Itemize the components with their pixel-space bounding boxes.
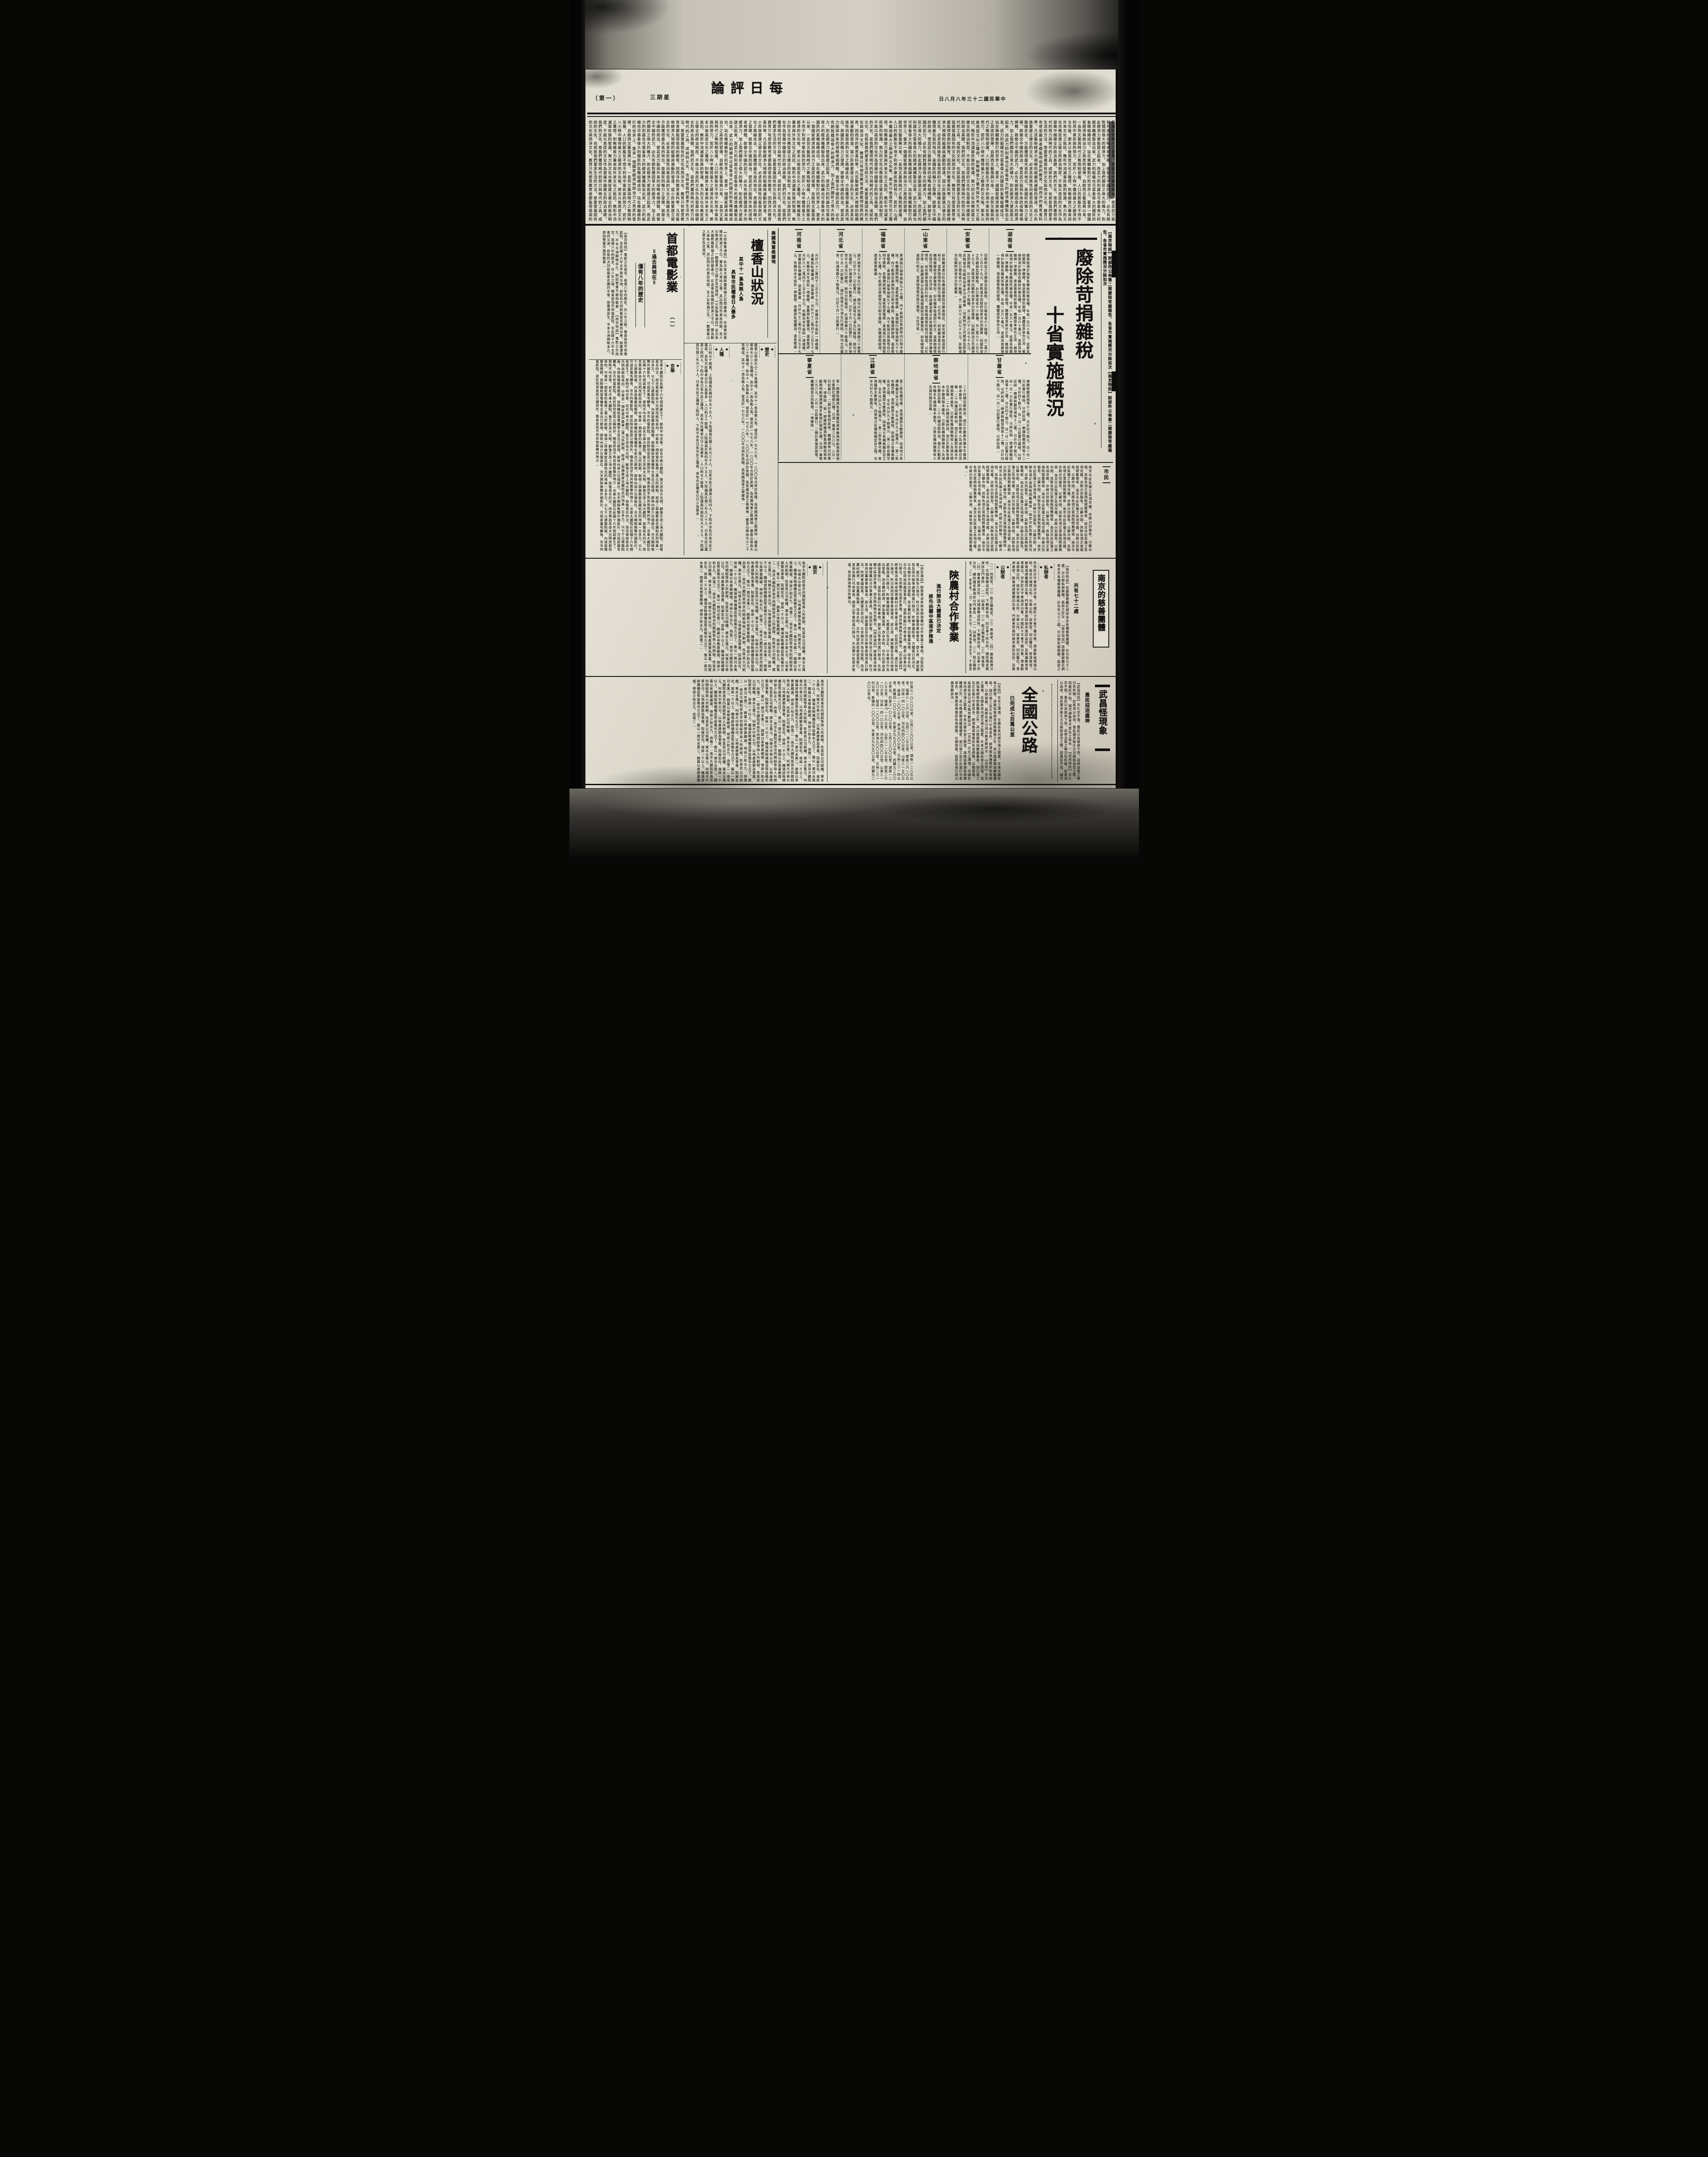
- charity-title: 南京的慈善團體: [1096, 574, 1106, 643]
- highway-subhead: 已完成七百萬公里: [1009, 696, 1015, 774]
- film-title: 首都電影業: [663, 233, 679, 314]
- honolulu-kicker: 美國海軍根據地: [770, 231, 775, 287]
- charity-group-marker-private: 私辦者: [1038, 564, 1054, 580]
- province-section-fujian: 福建省 黃酒捐行捐等捐稅九十七種，內千船捐百貨捐等均已明令廢除，各縣遵照辦理，違…: [862, 228, 904, 353]
- honolulu-lead: 【火奴魯魯通訊】此次美大總統羅斯福之訪問檀香山，在遠東局面微妙莫測之今日，實為耐…: [686, 230, 727, 340]
- province-header: 察哈爾省: [932, 355, 940, 384]
- film-section-marker-jinghua: 京華: [665, 362, 681, 374]
- province-section-chahar: 察哈爾省 二十四種田賦附加，現正計劃將各縣本年雜捐根本裁免，已將各縣捐額徵收入及…: [904, 354, 968, 460]
- film-nanjing-body: 南京大戲院是南京的閻紹等與人所創辦，性質是公司組織，資本五萬元，叫做大中華公司，…: [589, 561, 806, 672]
- wuchang-article: 武昌怪現象 愚民迎送瘟神 【武昌特訊】天久旱不雨，愚民以為瘟神下界，迎神送瘟之舉…: [1057, 679, 1113, 782]
- masthead-rule-thick: [587, 113, 1117, 114]
- province-body: 雜捐款項計抽收各縣前所徵各種，年收一百六十萬元，並將其他雜捐一律撤銷，漸逐察看情…: [990, 254, 1030, 354]
- province-body: 財政廳派委分赴各縣視察廢除苛雜後情形，如有陽奉陰違即行糾正，並將辦理情形按月報部…: [906, 254, 946, 354]
- tax-headline-rule: [1101, 233, 1101, 448]
- province-section-gansu: 甘肅省 磨課稅驗契捐等十二種，月計四千餘元，自一月一日起實行廢除，以紓民困…磨課…: [968, 354, 1031, 460]
- newspaper-page: （第一） 星期三 每日評論 中華民國二十三年八月八日 是國民的魄力之發揮。欲健全…: [585, 69, 1118, 789]
- tax-province-row-1: 湖南省 雜捐款項計抽收各縣前所徵各種，年收一百六十萬元，並將其他雜捐一律撤銷，漸…: [778, 228, 1031, 353]
- scan-right-border: [1118, 0, 1139, 857]
- film-article: 首都電影業 （一） ＝過去與現在＝ 僅有八年的歷史 【南京特訊】電影之在南京，祇…: [589, 228, 682, 555]
- province-body: 共計六十二萬四千三百五十七元，各縣自本年度起一律裁廢，並嚴禁私擅攤派，違者懲處……: [780, 254, 819, 354]
- film-body: 京華 京華大戲院在民國十六年間就產生了，那時不叫京華，初名中華大戲院，後又改為大…: [589, 359, 682, 554]
- charity-groups: 私辦者 世界紅卍字會南京分會，中國紅十字會下關分會，理善勸戒煙酒公所，南京市掩埋…: [969, 561, 1056, 673]
- province-section-henan: 河南省 共計六十二萬四千三百五十七元，各縣自本年度起一律裁廢，並嚴禁私擅攤派，違…: [778, 228, 820, 353]
- province-section-hebei: 河北省 鴉片捐等廿七項先行廢除，餘均分別裁併，計減收銀六十餘萬元，已於十月一日起…: [820, 228, 862, 353]
- honolulu-headline-block: 美國海軍根據地 檀香山狀況 其中十一島為無人島 具有市民權者日人最多 【火奴魯魯…: [684, 228, 777, 341]
- province-header: 福建省: [879, 229, 887, 252]
- film-part-number: （一）: [669, 314, 675, 332]
- masthead-rule-thin: [587, 116, 1117, 117]
- charity-subhead: 共有七十二處: [1073, 583, 1079, 639]
- province-header: 湖南省: [1006, 229, 1014, 252]
- highway-title: 全國公路: [1017, 686, 1039, 777]
- shaanxi-subhead-1: 進行辦法大體業已決定: [935, 584, 941, 657]
- film-subhead-2: 僅有八年的歷史: [635, 263, 645, 327]
- honolulu-title: 檀香山狀況: [747, 239, 764, 321]
- film-lead: 【南京特訊】電影之在南京，祇僅八年的歷史，在八年之前，簡直是找不到電影院，至民國…: [591, 231, 628, 356]
- province-body: 田賦附加之苛雜捐急即廢除，計已徵收者六十餘種，共二萬六千八百七十九元，其餘或非田…: [948, 254, 988, 354]
- province-header: 山東省: [922, 229, 929, 252]
- honolulu-history-body: 檀香山係由大小二十島構成，其中十一島為無人島，發見於一七七八年，一八〇〇年合併於…: [731, 343, 758, 551]
- charity-article: 南京的慈善團體 共有七十二處 【南京特訊】首都警察廳近調查本京各種慈善團體，計共…: [969, 561, 1113, 673]
- film-subhead-1: ＝過去與現在＝: [651, 249, 657, 327]
- tax-province-grid: 湖南省 雜捐款項計抽收各縣前所徵各種，年收一百六十萬元，並將其他雜捐一律撤銷，漸…: [778, 228, 1031, 460]
- charity-private-list: 世界紅卍字會南京分會，中國紅十字會下關分會，理善勸戒煙酒公所，南京市掩埋公所，中…: [1012, 561, 1037, 671]
- wuchang-body: 【武昌特訊】天久旱不雨，愚民以為瘟神下界，迎神送瘟之舉日有所聞，記者深以為奇，當…: [1059, 681, 1081, 780]
- wuchang-title: 武昌怪現象: [1097, 690, 1108, 746]
- editorial-body: 是國民的魄力之發揮。欲健全中國的政治，使其武力能與外來的侵略者相搏戰，欲健全中國…: [589, 120, 1115, 221]
- honolulu-article: 美國海軍根據地 檀香山狀況 其中十一島為無人島 具有市民權者日人最多 【火奴魯魯…: [684, 228, 776, 555]
- wuchang-title-box: 武昌怪現象: [1095, 685, 1110, 751]
- scan-bottom-margin: [569, 789, 1139, 857]
- honolulu-race-body: 人口約五十餘萬，上院議員任期四年凡十五人，下院議員任期二年凡三十人，日系市民之議…: [684, 343, 713, 551]
- lower-divider-rule: [585, 676, 1118, 677]
- honolulu-body: 歷史 檀香山係由大小二十島構成，其中十一島為無人島，發見於一七七八年，一八〇〇年…: [684, 343, 777, 554]
- highway-lead: 【京訊】文化之溝通，全國各省均感交通之需要，年來全國各省之開發，道路協會調查修築…: [915, 681, 1001, 780]
- citizens-body: 南京市民負擔之各項苛雜，亦經分別豁免，以蘇市困，其餘各項正當捐稅照舊徵收…南京市…: [780, 465, 1092, 552]
- charity-lead: 【南京特訊】首都警察廳近調查本京各種慈善團體，計共有七十二處，分公辦私辦兩類，茲…: [1057, 564, 1069, 671]
- tax-citizens-section: 市民 南京市民負擔之各項苛雜，亦經分別豁免，以蘇市困，其餘各項正當捐稅照舊徵收……: [778, 462, 1113, 554]
- province-section-ningxia: 寧夏省 第一期廢除糧捐牧畜捐驗契捐車駛捐地畝捐煙燈捐羊隻捐扛頭捐九種，月須一萬零…: [778, 354, 841, 460]
- scan-top-margin: [569, 0, 1139, 69]
- honolulu-rule: [767, 230, 768, 338]
- province-section-shandong: 山東省 財政廳派委分赴各縣視察廢除苛雜後情形，如有陽奉陰違即行糾正，並將辦理情形…: [904, 228, 947, 353]
- province-header: 江蘇省: [869, 355, 877, 378]
- shaanxi-title: 陝農村合作事業: [946, 570, 959, 656]
- bottom-frame-rule: [585, 784, 1118, 785]
- province-body: 黃酒捐行捐等捐稅九十七種，內千船捐百貨捐等均已明令廢除，各縣遵照辦理，違者照章懲…: [863, 254, 903, 354]
- charity-title-box: 南京的慈善團體: [1093, 570, 1109, 648]
- province-header: 寧夏省: [806, 355, 814, 378]
- masthead-weekday: 星期三: [650, 93, 671, 101]
- province-body: 第二批各縣苛雜，查得擬即全數廢除，因係地方各種無關宏旨之捐，全年共計九十餘萬元……: [842, 380, 903, 461]
- province-section-jiangsu: 江蘇省 第二批各縣苛雜，查得擬即全數廢除，因係地方各種無關宏旨之捐，全年共計九十…: [841, 354, 904, 460]
- honolulu-subhead-2: 具有市民權者日人最多: [730, 270, 736, 339]
- shaanxi-subhead-2: 將先由關中區逐步推進: [928, 594, 934, 667]
- charity-group-marker-public: 公辦者: [995, 564, 1011, 580]
- section-divider-rule: [585, 224, 1118, 226]
- tax-headline-block: 【南京特訊】財部昨公佈第二期廢除苛雜報告，各省市實施概況分誌如次【南京特訊】財部…: [1032, 228, 1113, 457]
- wuchang-subhead: 愚民迎送瘟神: [1084, 692, 1090, 744]
- tax-province-row-2: 甘肅省 磨課稅驗契捐等十二種，月計四千餘元，自一月一日起實行廢除，以紓民困…磨課…: [778, 354, 1031, 460]
- middle-divider-rule: [585, 558, 1118, 559]
- honolulu-subhead-1: 其中十一島為無人島: [738, 257, 744, 326]
- highway-article: 全國公路 已完成七百萬公里 【京訊】文化之溝通，全國各省均感交通之需要，年來全國…: [827, 679, 1055, 782]
- highway-figures: 計浙江一〇八〇公里，江西三三〇〇公里，湖南一二八五公里，福建八一三六公里，山西二…: [829, 681, 914, 780]
- film-jinghua-body: 京華大戲院在民國十六年間就產生了，那時不叫京華，初名中華大戲院，後又改為大光明，…: [589, 360, 664, 551]
- masthead-date: 中華民國二十三年八月八日: [939, 95, 1007, 102]
- province-header: 安徽省: [964, 229, 972, 252]
- film-headline-block: 首都電影業 （一） ＝過去與現在＝ 僅有八年的歷史 【南京特訊】電影之在南京，祇…: [589, 228, 682, 358]
- tax-title-line1: 廢除苛捐雜稅: [1071, 248, 1095, 377]
- tax-article: 【南京特訊】財部昨公佈第二期廢除苛雜報告，各省市實施概況分誌如次【南京特訊】財部…: [778, 228, 1113, 555]
- province-section-hunan: 湖南省 雜捐款項計抽收各縣前所徵各種，年收一百六十萬元，並將其他雜捐一律撤銷，漸…: [989, 228, 1031, 353]
- province-section-anhui: 安徽省 田賦附加之苛雜捐急即廢除，計已徵收者六十餘種，共二萬六千八百七十九元，其…: [947, 228, 989, 353]
- province-header: 甘肅省: [996, 355, 1003, 378]
- tax-headline-ornament: [1045, 238, 1097, 240]
- tax-title-line2: 十省實施概況: [1042, 306, 1066, 435]
- film-bottom-continuation: 南京大戲院是南京的閻紹等與人所創辦，性質是公司組織，資本五萬元，叫做大中華公司，…: [589, 679, 824, 782]
- province-body: 磨課稅驗契捐等十二種，月計四千餘元，自一月一日起實行廢除，以紓民困…磨課稅驗契捐…: [969, 380, 1030, 461]
- province-body: 第一期廢除糧捐牧畜捐驗契捐車駛捐地畝捐煙燈捐羊隻捐扛頭捐九種，月須一萬零三九八元…: [780, 380, 840, 461]
- page-number: （第一）: [592, 94, 620, 102]
- province-header: 河北省: [837, 229, 845, 252]
- honolulu-section-marker-race: 人種: [714, 346, 730, 358]
- shaanxi-body: 【西安通訊】經委會派來陝省辦理農村合作事業之專員，自抵西安後，連日與各方接洽，昨…: [828, 563, 924, 672]
- citizens-header: 市民: [1103, 466, 1110, 483]
- masthead-title: 每日評論: [711, 77, 789, 97]
- newspaper-scan-page: （第一） 星期三 每日評論 中華民國二十三年八月八日 是國民的魄力之發揮。欲健全…: [569, 0, 1139, 857]
- film-section-marker-nanjing: 南京: [807, 564, 823, 575]
- province-body: 鴉片捐等廿七項先行廢除，餘均分別裁併，計減收銀六十餘萬元，已於十月一日起實行…鴉…: [821, 254, 861, 354]
- province-header: 河南省: [795, 229, 803, 252]
- tax-kicker: 【南京特訊】財部昨公佈第二期廢除苛雜報告，各省市實施概況分誌如次【南京特訊】財部…: [1103, 230, 1112, 453]
- province-body: 二十四種田賦附加，現正計劃將各縣本年雜捐根本裁免，已將各縣捐額徵收入及減計細目造…: [906, 385, 967, 460]
- shaanxi-article: 陝農村合作事業 進行辦法大體業已決定 將先由關中區逐步推進 【西安通訊】經委會派…: [827, 561, 966, 673]
- honolulu-section-marker-history: 歷史: [759, 346, 775, 358]
- film-nanjing-section: 南京 南京大戲院是南京的閻紹等與人所創辦，性質是公司組織，資本五萬元，叫做大中華…: [589, 561, 824, 673]
- scan-left-border: [569, 0, 585, 857]
- charity-public-list: （一）同善堂，（二）租乏積善堂，（三）普善堂，（四）廣善救濟分所，北城施樂送診所…: [969, 561, 994, 671]
- highway-headline-block: 全國公路 已完成七百萬公里: [1005, 684, 1052, 779]
